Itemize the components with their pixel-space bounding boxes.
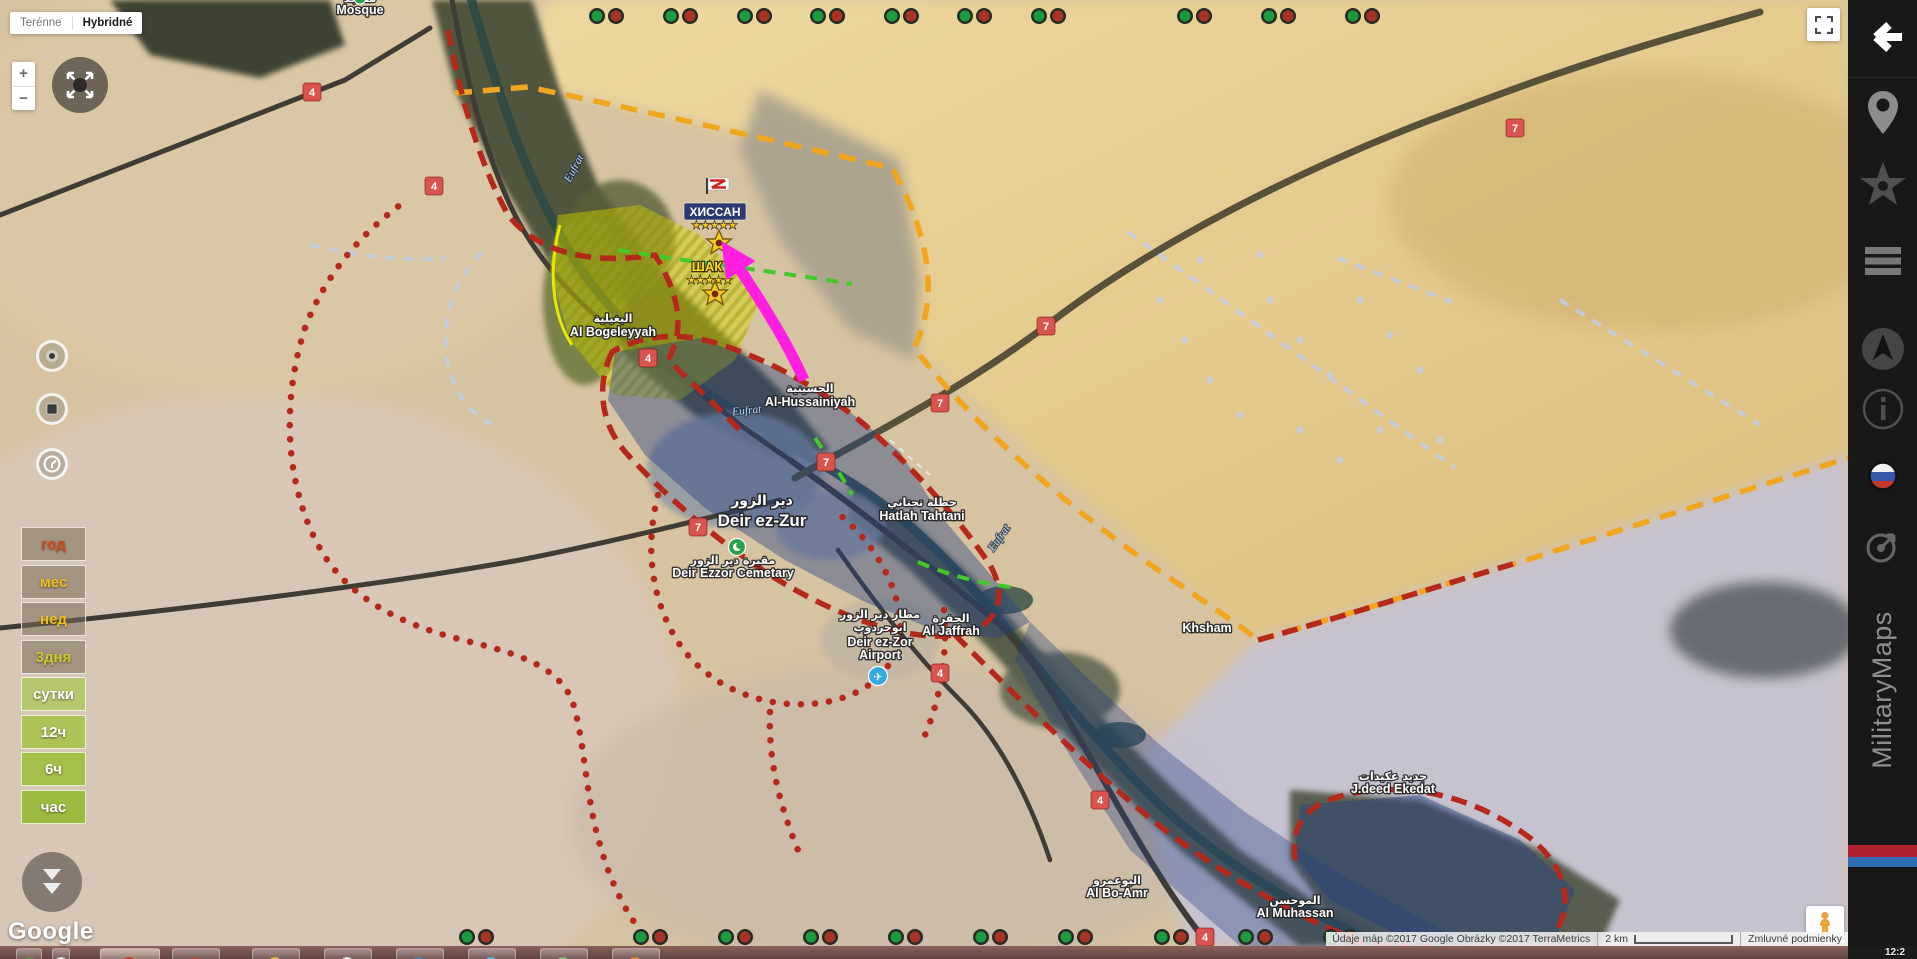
road-badge-7: 7 [689, 518, 707, 536]
windows-taskbar: 12:2 [0, 946, 1917, 959]
back-button[interactable] [1848, 16, 1917, 58]
back-arrow-icon [1860, 16, 1906, 58]
attribution-divider [1740, 932, 1741, 946]
language-flag-button[interactable] [1848, 460, 1917, 492]
green-status-dot [592, 11, 603, 22]
attribution-divider [1597, 932, 1598, 946]
road-badge-7: 7 [817, 453, 835, 471]
four-arrows-icon [60, 65, 100, 105]
time-filter-panel: годмеснед3днясутки12ч6ччас [21, 527, 86, 824]
svg-text:Airport: Airport [859, 648, 902, 662]
red-status-dot [1283, 11, 1294, 22]
taskbar-app-active[interactable] [100, 948, 160, 959]
map-type-toggle: Terénne Hybridné [10, 12, 142, 34]
red-status-dot [759, 11, 770, 22]
svg-text:✈: ✈ [873, 671, 882, 684]
green-status-dot [1034, 11, 1045, 22]
map-label-hatlah-tahtani: حطلة تحتانيHatlah Tahtani [879, 496, 964, 523]
taskbar-icon-grid[interactable] [52, 948, 70, 959]
svg-text:دير الزور: دير الزور [730, 493, 793, 509]
road-badge-7: 7 [1506, 119, 1524, 137]
cemetery-icon [729, 539, 746, 556]
zoom-in-button[interactable]: + [12, 62, 35, 86]
square-icon [45, 402, 59, 416]
red-status-dot [906, 11, 917, 22]
google-logo[interactable]: Google [8, 918, 94, 946]
red-status-dot [685, 11, 696, 22]
time-filter-год[interactable]: год [21, 527, 86, 561]
layer-circle-button[interactable] [36, 340, 68, 372]
green-status-dot [1348, 11, 1359, 22]
airport-icon: ✈ [869, 667, 888, 686]
green-status-dot [1180, 11, 1191, 22]
green-status-dot [636, 932, 647, 943]
red-status-dot [1176, 932, 1187, 943]
red-status-dot [740, 932, 751, 943]
svg-text:Al Muhassan: Al Muhassan [1256, 906, 1333, 920]
red-status-dot [1260, 932, 1271, 943]
road-badge-7: 7 [931, 394, 949, 412]
right-sidebar: MilitaryMaps [1848, 0, 1917, 959]
info-icon [1862, 388, 1904, 430]
svg-text:ابوحردوب: ابوحردوب [853, 621, 906, 634]
taskbar-tray: 12:2 [1848, 946, 1917, 959]
svg-text:الحسينية: الحسينية [786, 382, 833, 395]
scale-bar [1634, 935, 1733, 944]
svg-text:J.deed Ekedat: J.deed Ekedat [1351, 782, 1436, 796]
red-status-dot [611, 11, 622, 22]
attribution-text: Údaje máp ©2017 Google Obrázky ©2017 Ter… [1332, 933, 1590, 945]
double-down-icon [39, 867, 65, 897]
shak-label: ШАК [692, 259, 722, 274]
red-status-dot [910, 932, 921, 943]
green-status-dot [887, 11, 898, 22]
zoom-controls: + − [12, 62, 35, 110]
svg-text:4: 4 [1202, 932, 1209, 944]
map-attribution: Údaje máp ©2017 Google Obrázky ©2017 Ter… [1326, 932, 1848, 946]
sidebar-stripe-red [1848, 845, 1917, 857]
time-filter-6ч[interactable]: 6ч [21, 752, 86, 786]
taskbar-start-button[interactable] [16, 948, 42, 959]
svg-text:Hatlah Tahtani: Hatlah Tahtani [879, 509, 964, 523]
red-status-dot [655, 932, 666, 943]
green-status-dot [666, 11, 677, 22]
svg-text:7: 7 [1043, 321, 1049, 333]
svg-text:4: 4 [937, 668, 944, 680]
scroll-down-button[interactable] [22, 852, 82, 912]
green-status-dot [740, 11, 751, 22]
map-label-khsham: Khsham [1182, 621, 1231, 635]
sidebar-divider [1848, 77, 1917, 78]
russia-flag-icon [1867, 460, 1899, 492]
map-type-terrain-button[interactable]: Terénne [10, 12, 72, 34]
hissan-stars: ★★★★★ [692, 221, 737, 231]
red-status-dot [1053, 11, 1064, 22]
svg-text:البغيلية: البغيلية [594, 312, 633, 325]
red-status-dot [979, 11, 990, 22]
red-status-dot [995, 932, 1006, 943]
hissan-label: ХИССАН [690, 205, 741, 219]
map-canvas[interactable]: 44444477777 مسجدMosqueالبغيليةAl Bogeley… [0, 0, 1848, 946]
svg-text:مطار دير الزور: مطار دير الزور [839, 608, 920, 621]
svg-text:Khsham: Khsham [1182, 621, 1231, 635]
svg-text:4: 4 [1097, 795, 1104, 807]
history-clock-button[interactable] [36, 448, 68, 480]
green-status-dot [1061, 932, 1072, 943]
fullscreen-icon [1815, 16, 1833, 34]
taskbar-app-blue[interactable] [396, 948, 444, 959]
red-status-dot [825, 932, 836, 943]
red-status-dot [481, 932, 492, 943]
fullscreen-button[interactable] [1807, 8, 1840, 41]
terrain-layer [0, 0, 1848, 946]
time-filter-нед[interactable]: нед [21, 602, 86, 636]
green-status-dot [891, 932, 902, 943]
svg-text:حطلة تحتاني: حطلة تحتاني [887, 496, 957, 509]
svg-text:Al-Hussainiyah: Al-Hussainiyah [765, 395, 855, 409]
brand-vertical-title: MilitaryMaps [1752, 560, 1917, 820]
taskbar-app-white[interactable] [324, 948, 372, 959]
svg-text:Mosque: Mosque [336, 3, 383, 17]
svg-text:Al Bogeleyyah: Al Bogeleyyah [570, 325, 656, 339]
green-status-dot [806, 932, 817, 943]
green-status-dot [1264, 11, 1275, 22]
time-filter-12ч[interactable]: 12ч [21, 715, 86, 749]
sidebar-stripe-blue [1848, 857, 1917, 867]
taskbar-app-green[interactable] [540, 948, 588, 959]
terms-link[interactable]: Zmluvné podmienky [1748, 933, 1842, 945]
time-filter-3дня[interactable]: 3дня [21, 640, 86, 674]
taskbar-app-ie[interactable] [468, 948, 516, 959]
svg-text:Deir ez-Zur: Deir ez-Zur [718, 511, 807, 530]
taskbar-app-pdf[interactable] [172, 948, 220, 959]
pan-expand-button[interactable] [52, 57, 108, 113]
favorites-button[interactable] [1848, 160, 1917, 208]
taskbar-app-folder[interactable] [252, 948, 300, 959]
green-status-dot [462, 932, 473, 943]
stop-circle-button[interactable] [36, 393, 68, 425]
green-status-dot [1157, 932, 1168, 943]
scale-label: 2 km [1605, 933, 1628, 945]
menu-icon [1865, 246, 1901, 276]
svg-text:Deir Ezzor Cemetary: Deir Ezzor Cemetary [672, 566, 794, 580]
road-badge-4: 4 [303, 83, 321, 101]
location-pin-icon [1866, 90, 1900, 136]
svg-text:7: 7 [823, 457, 829, 469]
road-badge-4: 4 [639, 349, 657, 367]
svg-text:Al Bo-Amr: Al Bo-Amr [1086, 886, 1148, 900]
svg-text:7: 7 [937, 398, 943, 410]
green-status-dot [960, 11, 971, 22]
disc-icon [45, 349, 59, 363]
road-badge-4: 4 [425, 177, 443, 195]
red-status-dot [832, 11, 843, 22]
navigation-icon [1860, 326, 1906, 372]
svg-text:Deir ez-Zor: Deir ez-Zor [847, 635, 912, 649]
road-badge-7: 7 [1037, 317, 1055, 335]
green-status-dot [721, 932, 732, 943]
svg-text:4: 4 [431, 181, 438, 193]
red-status-dot [1199, 11, 1210, 22]
map-label-al-bo-amr: البوعمروAl Bo-Amr [1086, 874, 1148, 900]
taskbar-app-firefox[interactable] [612, 948, 660, 959]
shak-stars: ★★★★★ [687, 276, 732, 286]
green-status-dot [1241, 932, 1252, 943]
green-status-dot [976, 932, 987, 943]
time-filter-сутки[interactable]: сутки [21, 677, 86, 711]
menu-button[interactable] [1848, 246, 1917, 276]
zoom-out-button[interactable]: − [12, 87, 35, 111]
taskbar-clock[interactable]: 12:2 [1885, 947, 1905, 959]
militarymaps-app: 44444477777 مسجدMosqueالبغيليةAl Bogeley… [0, 0, 1917, 959]
svg-text:7: 7 [1512, 123, 1518, 135]
svg-text:Al Jaffrah: Al Jaffrah [922, 624, 980, 638]
green-status-dot [813, 11, 824, 22]
time-filter-мес[interactable]: мес [21, 565, 86, 599]
red-status-dot [1367, 11, 1378, 22]
svg-text:4: 4 [645, 353, 652, 365]
clock-icon [43, 455, 61, 473]
time-filter-час[interactable]: час [21, 790, 86, 824]
road-badge-4: 4 [1091, 791, 1109, 809]
info-button[interactable] [1848, 388, 1917, 430]
road-badge-4: 4 [931, 664, 949, 682]
svg-text:7: 7 [695, 522, 701, 534]
map-viewport[interactable]: 44444477777 مسجدMosqueالبغيليةAl Bogeley… [0, 0, 1848, 946]
svg-text:4: 4 [309, 87, 316, 99]
red-status-dot [1080, 932, 1091, 943]
map-label-j-deed-ekedat: جديد عكيداتJ.deed Ekedat [1351, 770, 1436, 796]
navigation-button[interactable] [1848, 326, 1917, 372]
road-badge-4: 4 [1196, 928, 1214, 946]
star-icon [1859, 160, 1907, 208]
map-type-hybrid-button[interactable]: Hybridné [73, 12, 143, 34]
location-button[interactable] [1848, 90, 1917, 136]
